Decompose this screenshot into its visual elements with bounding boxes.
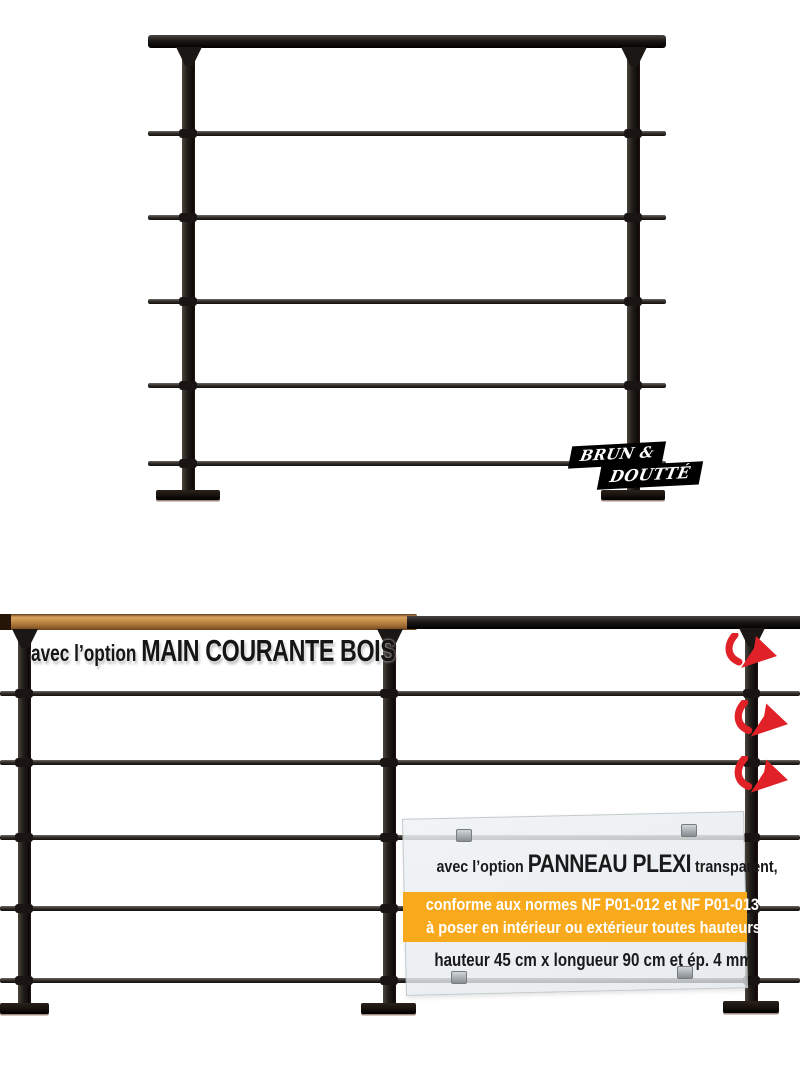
rail-bar: [0, 760, 800, 765]
norms-banner: conforme aux normes NF P01-012 et NF P01…: [403, 892, 747, 942]
rail-bar: [148, 299, 666, 304]
base-plate: [361, 1003, 416, 1014]
catalog-page: BRUN & DOUTTÉ avec l’option MAIN COURA: [0, 0, 800, 1067]
norms-line-2: à poser en intérieur ou extérieur toutes…: [403, 917, 747, 940]
wood-option-name: MAIN COURANTE BOIS: [141, 633, 395, 668]
rail-bar: [0, 691, 800, 696]
plexi-option-line: avec l’option PANNEAU PLEXI transparent,: [436, 850, 777, 879]
wood-option-caption: avec l’option MAIN COURANTE BOIS: [31, 633, 395, 669]
dimensions-caption: hauteur 45 cm x longueur 90 cm et ép. 4 …: [404, 950, 746, 971]
wood-handrail: [0, 614, 417, 630]
rail-bar: [148, 215, 666, 220]
panel-clip: [451, 971, 467, 984]
rail-bar: [148, 383, 666, 388]
panel-clip: [456, 829, 472, 842]
post: [627, 46, 640, 492]
plexi-option-caption: avec l’option PANNEAU PLEXI transparent,: [404, 850, 746, 879]
rail-bar: [148, 131, 666, 136]
post: [18, 628, 31, 1005]
bar-connector: [743, 689, 760, 698]
brand-badge-line1: BRUN &: [579, 443, 656, 465]
brand-badge: DOUTTÉ: [597, 461, 703, 490]
gusset: [621, 47, 647, 66]
wood-option-prefix: avec l’option: [31, 640, 141, 666]
base-plate: [723, 1001, 779, 1013]
bar-connector: [743, 833, 760, 842]
post: [182, 46, 195, 492]
handrail-steel: [148, 35, 666, 48]
wood-handrail-end-cap: [0, 614, 11, 630]
plexi-option-suffix: transparent,: [691, 857, 778, 876]
post: [383, 628, 396, 1005]
base-plate: [0, 1003, 49, 1014]
gusset: [176, 47, 202, 66]
snap-arrow-icon: [722, 633, 778, 669]
plexi-option-name: PANNEAU PLEXI: [528, 850, 691, 878]
base-plate: [156, 490, 220, 500]
snap-arrow-icon: [731, 700, 789, 738]
plexi-option-prefix: avec l’option: [436, 857, 527, 876]
brand-badge-line2: DOUTTÉ: [608, 463, 692, 486]
snap-arrow-icon: [731, 756, 789, 794]
norms-line-1: conforme aux normes NF P01-012 et NF P01…: [403, 894, 747, 917]
panel-clip: [681, 824, 697, 837]
base-plate: [601, 490, 665, 500]
handrail-steel: [407, 616, 800, 629]
